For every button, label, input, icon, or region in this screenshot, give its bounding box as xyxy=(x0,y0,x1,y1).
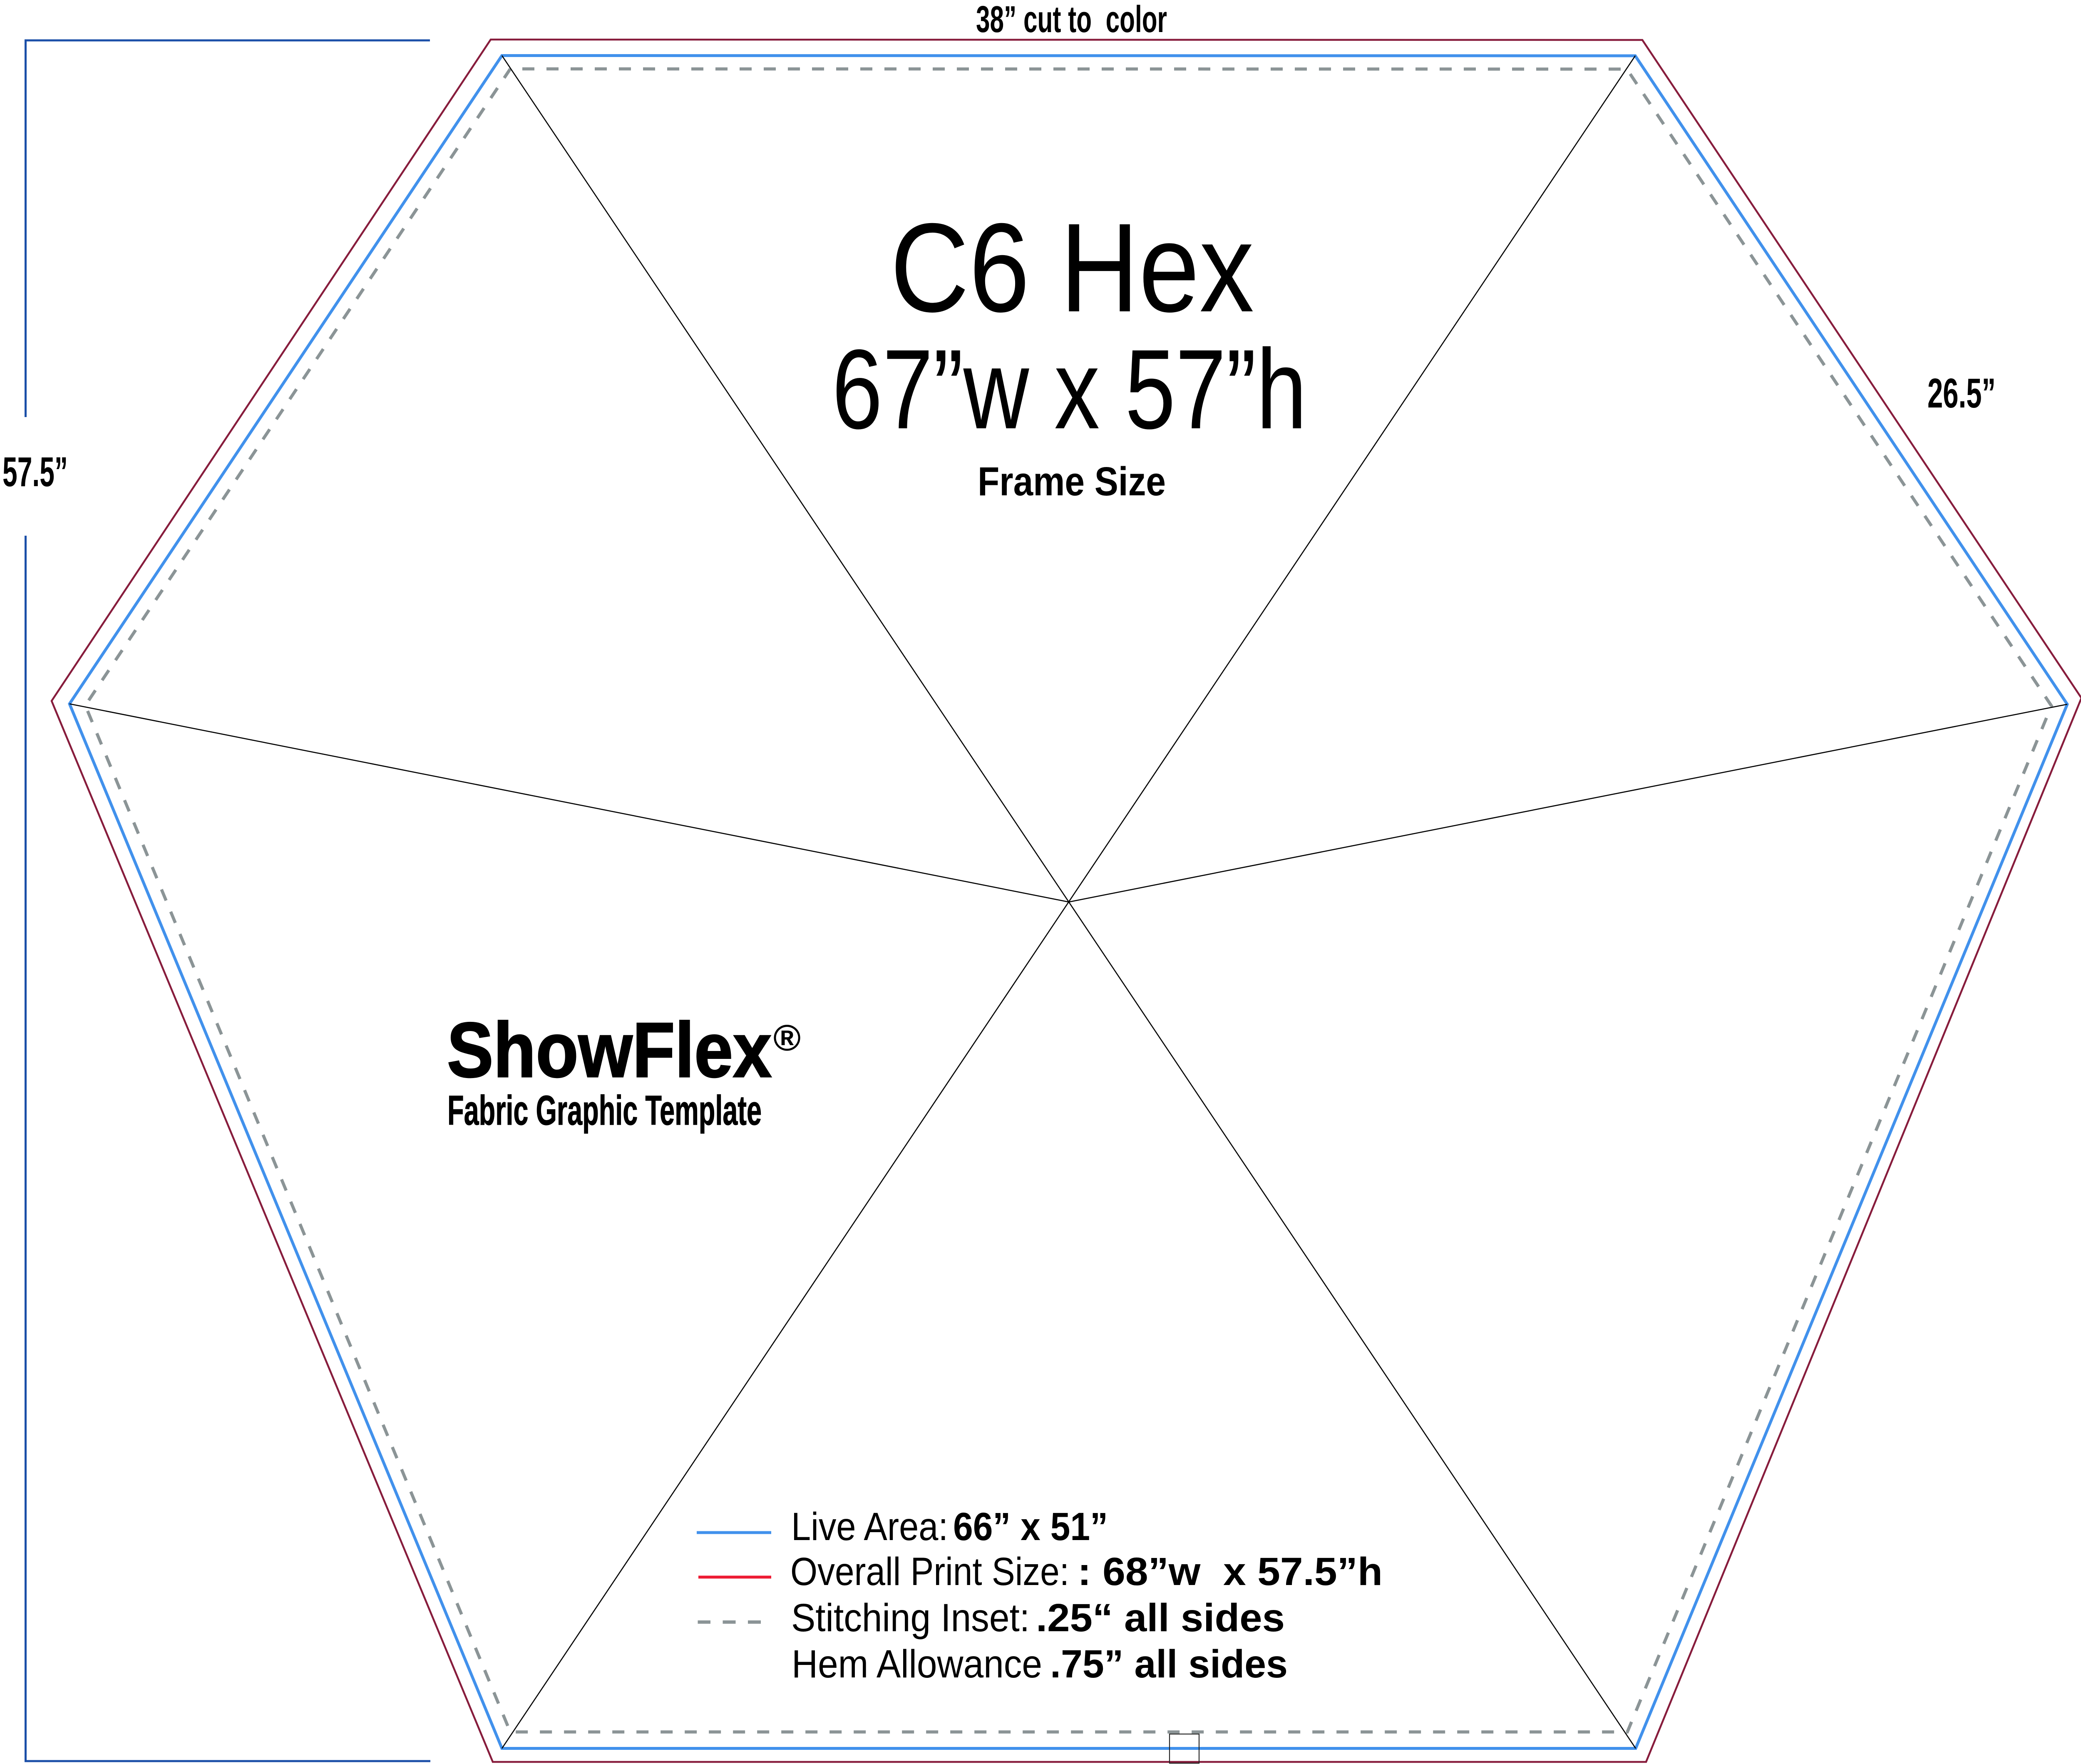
svg-text:Hem Allowance: Hem Allowance xyxy=(792,1642,1042,1686)
svg-text:67”w x 57”h: 67”w x 57”h xyxy=(832,326,1307,452)
svg-text:®: ® xyxy=(773,1017,801,1058)
svg-text:57.5”: 57.5” xyxy=(2,449,68,495)
svg-text:Live Area:: Live Area: xyxy=(791,1505,948,1549)
svg-text:Fabric Graphic Template: Fabric Graphic Template xyxy=(447,1087,762,1134)
svg-text:C6 Hex: C6 Hex xyxy=(890,197,1254,338)
svg-text:ShowFlex: ShowFlex xyxy=(447,1006,772,1093)
svg-text:38” cut to color: 38” cut to color xyxy=(976,0,1167,40)
svg-text:26.5”: 26.5” xyxy=(1927,370,1996,417)
svg-text:66” x 51”: 66” x 51” xyxy=(953,1505,1108,1549)
svg-text:Stitching Inset:: Stitching Inset: xyxy=(791,1596,1030,1640)
svg-text:.75” all sides: .75” all sides xyxy=(1050,1642,1288,1686)
svg-text:.25“ all sides: .25“ all sides xyxy=(1036,1596,1285,1640)
svg-text:: 68”w x 57.5”h: : 68”w x 57.5”h xyxy=(1078,1550,1383,1594)
svg-text:Overall Print Size:: Overall Print Size: xyxy=(790,1550,1069,1594)
svg-text:Frame Size: Frame Size xyxy=(978,459,1166,504)
